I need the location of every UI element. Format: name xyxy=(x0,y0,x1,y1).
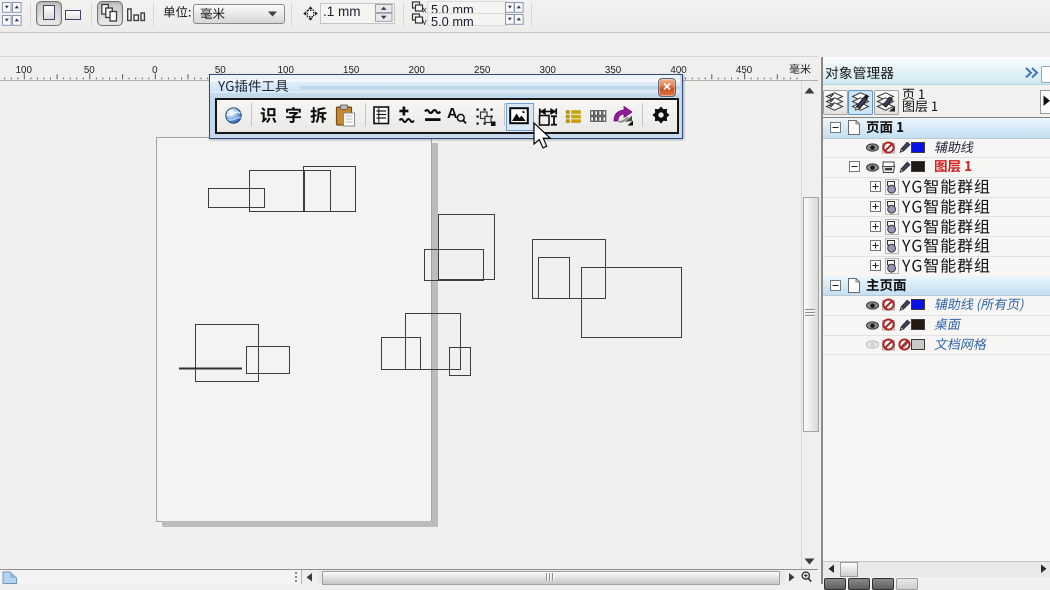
svg-text:450: 450 xyxy=(736,65,753,76)
svg-text:100: 100 xyxy=(16,65,33,76)
svg-text:0: 0 xyxy=(152,65,158,76)
svg-text:A: A xyxy=(447,106,458,122)
svg-text:50: 50 xyxy=(84,65,95,76)
